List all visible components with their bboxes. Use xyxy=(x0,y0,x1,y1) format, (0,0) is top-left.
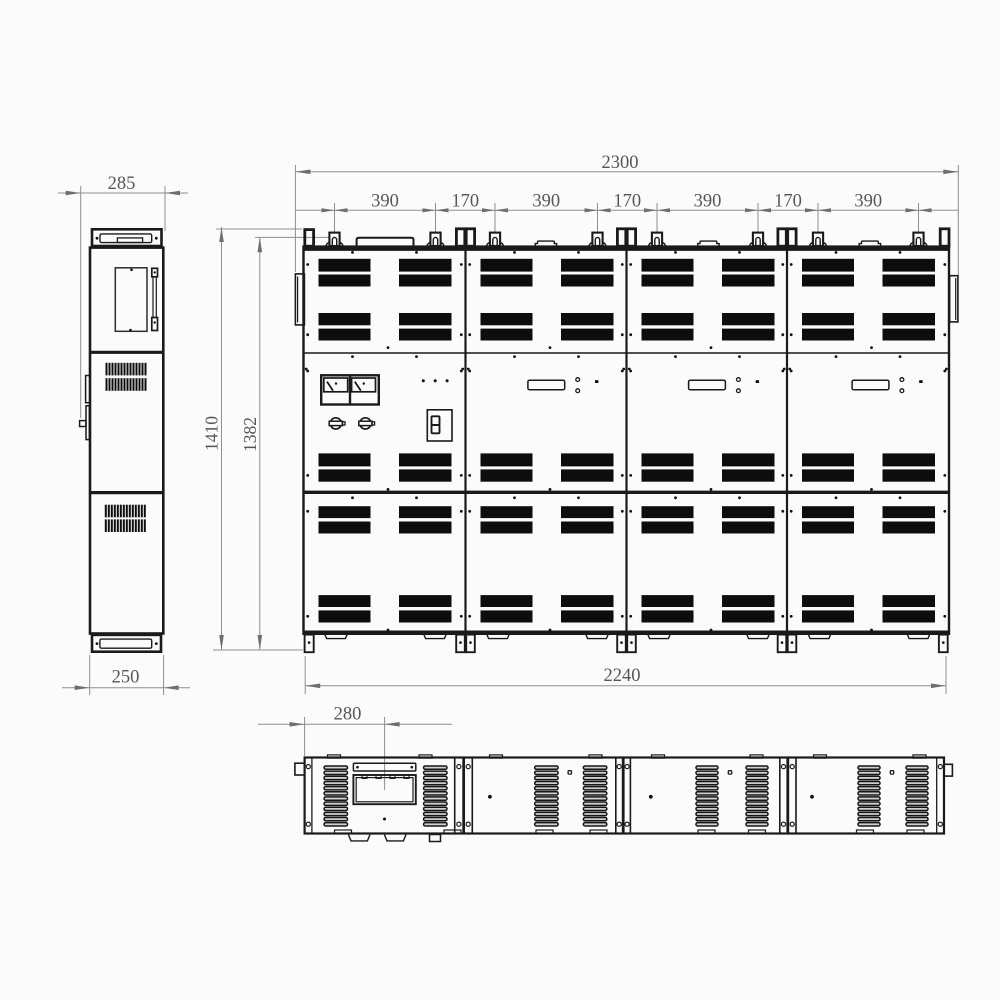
svg-text:2240: 2240 xyxy=(604,666,641,686)
svg-text:390: 390 xyxy=(371,192,399,212)
svg-text:2300: 2300 xyxy=(602,153,639,173)
svg-text:1410: 1410 xyxy=(202,416,222,451)
svg-text:285: 285 xyxy=(108,174,136,194)
svg-text:390: 390 xyxy=(694,192,722,212)
svg-text:390: 390 xyxy=(532,192,560,212)
svg-text:170: 170 xyxy=(613,192,641,212)
svg-text:170: 170 xyxy=(774,192,802,212)
svg-text:1382: 1382 xyxy=(240,417,260,452)
svg-text:250: 250 xyxy=(112,668,140,688)
svg-text:280: 280 xyxy=(334,705,362,725)
svg-text:390: 390 xyxy=(854,192,882,212)
svg-text:170: 170 xyxy=(451,192,479,212)
